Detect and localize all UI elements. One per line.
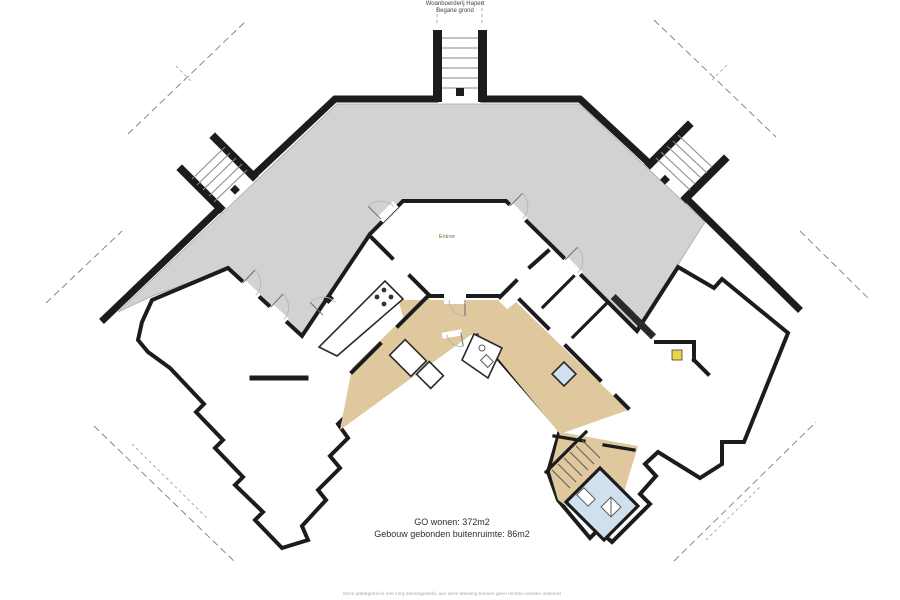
plan-title-line2: Begane grond <box>436 8 474 14</box>
roofline-far-right <box>800 231 868 298</box>
wall-centerroom-se <box>500 251 548 297</box>
floorplan-canvas: Woonboerderij Hapert Begane grond Entree… <box>0 0 900 600</box>
wall-rightwing-div1 <box>543 272 578 307</box>
hallway-right-wing <box>478 302 628 434</box>
summary-go-wonen: GO wonen: 372m2 <box>414 517 490 527</box>
roofline-bottom-left-inner <box>132 444 208 519</box>
gate-ladder-top <box>433 30 487 102</box>
barn-wall-right-lower <box>686 198 798 308</box>
roofline-top-left <box>128 21 246 134</box>
roofline-bottom-right-inner <box>706 487 760 540</box>
disclaimer-text: Deze plattegrond is met zorg samengestel… <box>343 591 561 597</box>
fireplace <box>656 342 708 374</box>
gate-post <box>456 88 464 96</box>
room-label-entree: Entree <box>439 234 455 240</box>
wall-rightwing-div2 <box>573 302 608 337</box>
summary-buitenruimte: Gebouw gebonden buitenruimte: 86m2 <box>374 529 530 539</box>
plan-title-line1: Woonboerderij Hapert <box>426 1 485 7</box>
tick-top-left <box>176 66 192 82</box>
gate-post <box>230 185 240 195</box>
roofline-far-left <box>46 231 122 303</box>
sink-icon <box>479 345 485 351</box>
floorplan-page: Woonboerderij Hapert Begane grond Entree… <box>0 0 900 600</box>
roofline-top-right <box>654 20 776 137</box>
fireplace-hearth <box>672 350 682 360</box>
